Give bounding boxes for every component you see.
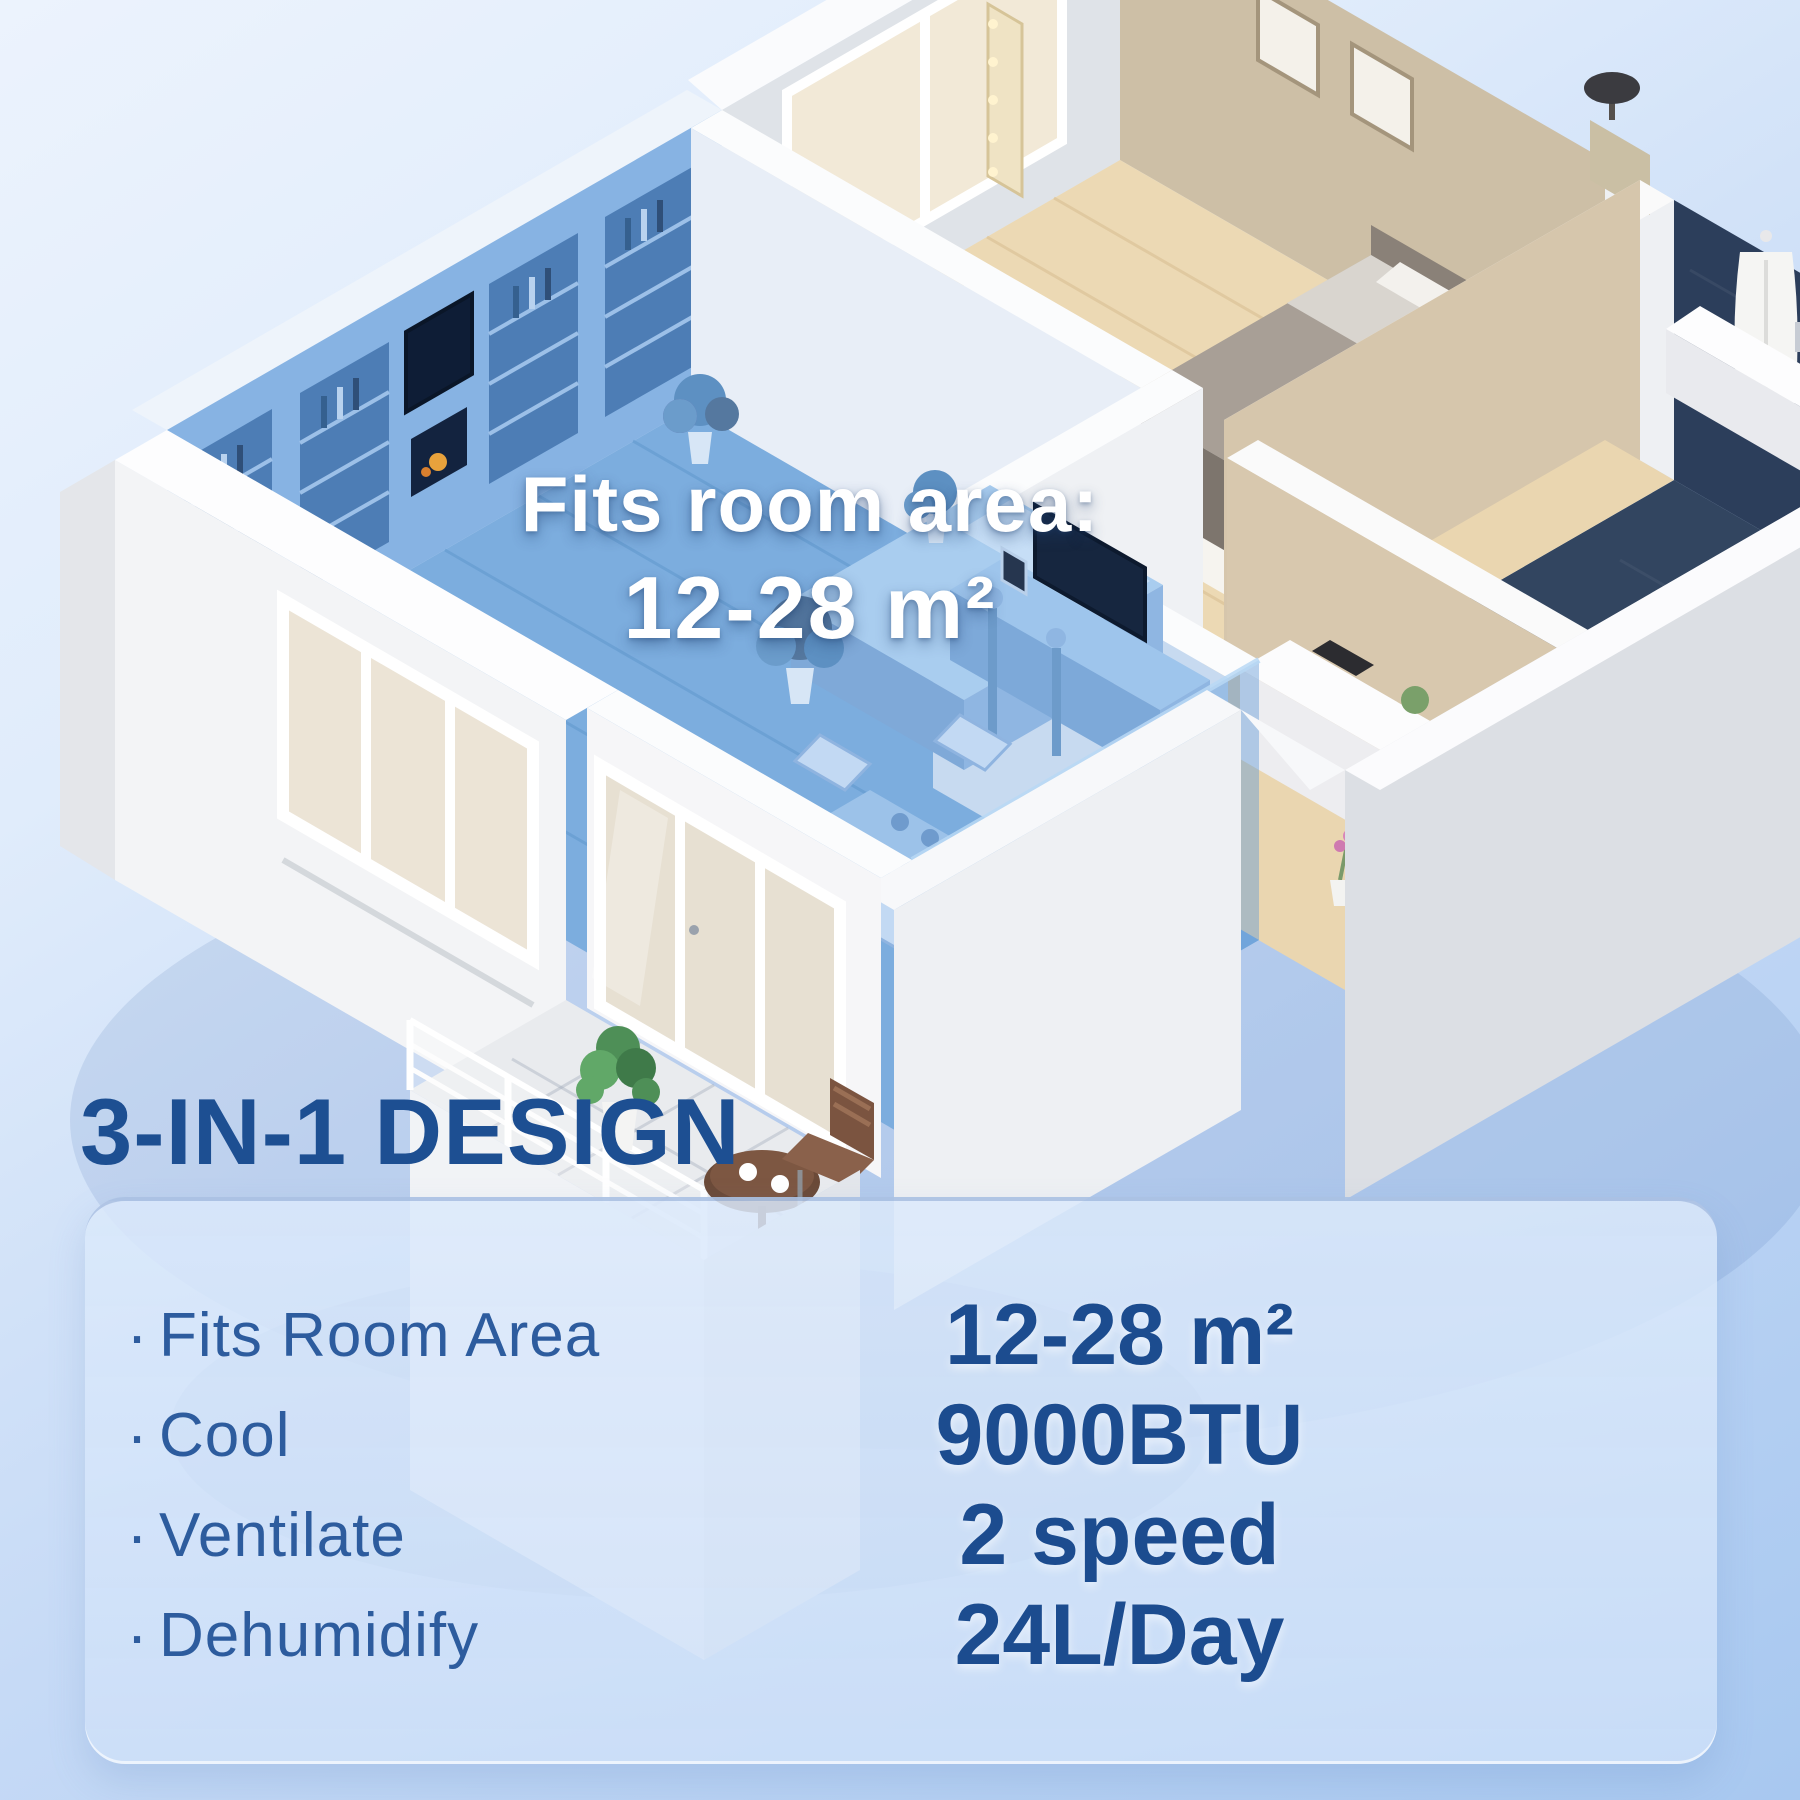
page-root: { "room_overlay": { "title": "Fits room … — [0, 0, 1800, 1800]
feature-value: 2 speed — [807, 1486, 1432, 1585]
section-heading: 3-IN-1 DESIGN — [80, 1078, 741, 1186]
feature-label: Cool — [159, 1400, 291, 1471]
plant — [1401, 686, 1429, 714]
feature-bullet: · — [115, 1403, 159, 1467]
feature-row: · Dehumidify 24L/Day — [115, 1585, 1687, 1685]
fit-room-title: Fits room area: — [420, 462, 1200, 546]
feature-row: · Cool 9000BTU — [115, 1385, 1687, 1485]
fit-room-overlay: Fits room area: 12-28 m² — [420, 462, 1200, 655]
feature-row: · Ventilate 2 speed — [115, 1485, 1687, 1585]
lamp — [1584, 72, 1640, 104]
fit-room-area: 12-28 m² — [420, 560, 1200, 655]
feature-bullet: · — [115, 1303, 159, 1367]
feature-label: Dehumidify — [159, 1600, 479, 1671]
features-panel: · Fits Room Area 12-28 m² · Cool 9000BTU… — [85, 1197, 1717, 1764]
feature-row: · Fits Room Area 12-28 m² — [115, 1285, 1687, 1385]
feature-value: 24L/Day — [807, 1586, 1432, 1685]
vanity-mirror — [988, 4, 1022, 196]
door-handle — [689, 925, 699, 935]
feature-label: Ventilate — [159, 1500, 406, 1571]
feature-value: 9000BTU — [807, 1386, 1432, 1485]
feature-bullet: · — [115, 1503, 159, 1567]
feature-rows: · Fits Room Area 12-28 m² · Cool 9000BTU… — [115, 1285, 1687, 1685]
feature-label: Fits Room Area — [159, 1300, 600, 1371]
feature-value: 12-28 m² — [807, 1286, 1432, 1385]
feature-bullet: · — [115, 1603, 159, 1667]
